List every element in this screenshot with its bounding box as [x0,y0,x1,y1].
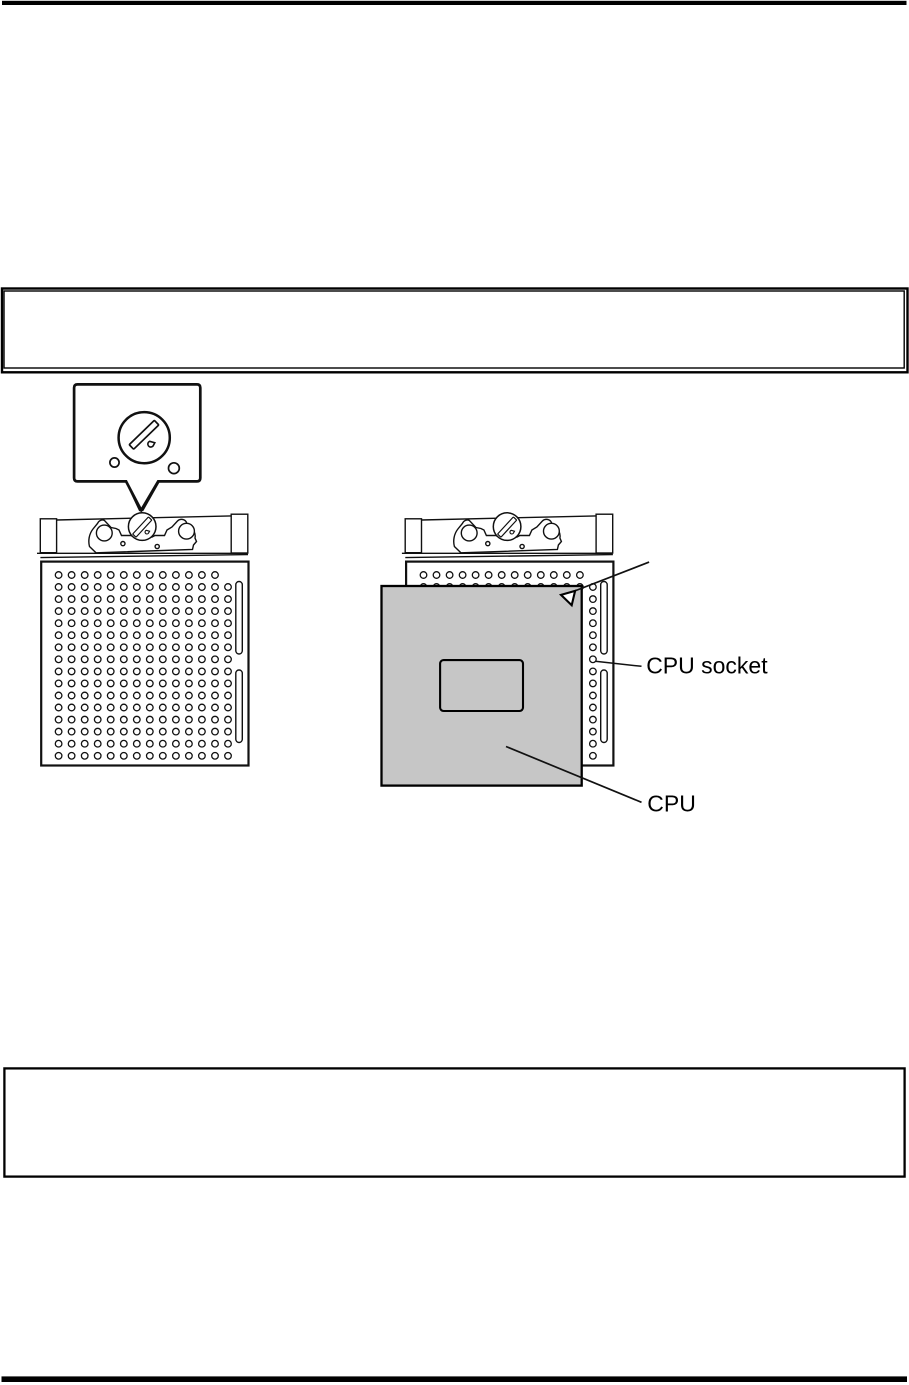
svg-text:CPU: CPU [647,791,696,817]
svg-text:CPU socket: CPU socket [646,653,768,679]
